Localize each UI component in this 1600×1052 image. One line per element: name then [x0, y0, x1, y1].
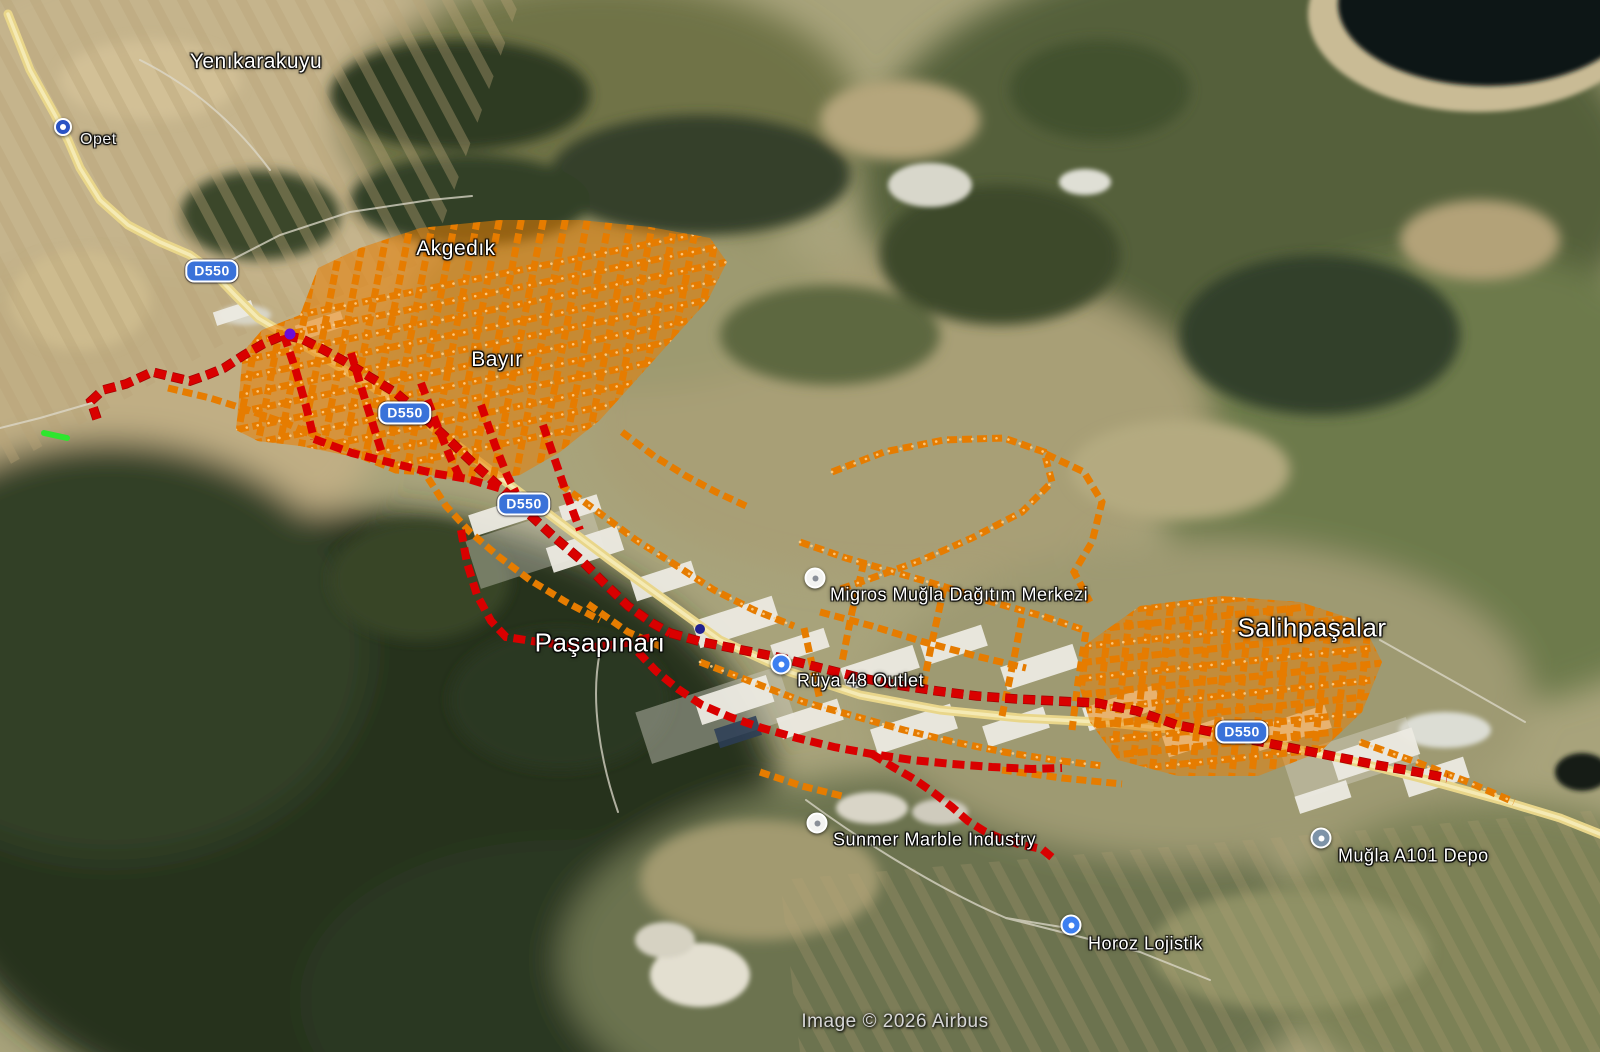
- imagery-attribution: Image © 2026 Airbus: [801, 1011, 988, 1033]
- opet-fuel-station-marker-icon[interactable]: [54, 118, 72, 136]
- mugla-a101-depo-marker-icon[interactable]: [1311, 828, 1332, 849]
- road-shield-d550-2: D550: [378, 402, 431, 425]
- road-shield-d550-4: D550: [1215, 721, 1268, 744]
- sunmer-marble-industry-marker-icon[interactable]: [807, 813, 828, 834]
- route-endpoint-dot-purple: [285, 329, 296, 340]
- poi-label-horoz-lojistik[interactable]: Horoz Lojistik: [1088, 934, 1203, 955]
- migros-distribution-center-marker-icon[interactable]: [805, 568, 826, 589]
- town-label-pasapinari[interactable]: Paşapınarı: [535, 628, 666, 659]
- poi-label-ruya-48-outlet[interactable]: Rüya 48 Outlet: [797, 671, 924, 692]
- route-overlay: [0, 0, 1600, 1052]
- ruya-48-outlet-shopping-marker-icon[interactable]: [771, 654, 792, 675]
- poi-label-sunmer-marble[interactable]: Sunmer Marble Industry: [833, 830, 1036, 851]
- route-segment-green: [44, 433, 67, 438]
- poi-label-mugla-a101-depo[interactable]: Muğla A101 Depo: [1338, 846, 1489, 867]
- horoz-lojistik-marker-icon[interactable]: [1061, 915, 1082, 936]
- satellite-map-view[interactable]: D550 D550 D550 D550 Yenıkarakuyu Akgedık…: [0, 0, 1600, 1052]
- route-endpoint-dot-navy: [695, 624, 705, 634]
- town-label-salihpasalar[interactable]: Salihpaşalar: [1237, 613, 1386, 644]
- town-label-akgedik[interactable]: Akgedık: [416, 237, 495, 261]
- road-shield-d550-1: D550: [185, 260, 238, 283]
- road-shield-d550-3: D550: [497, 493, 550, 516]
- poi-label-opet[interactable]: Opet: [80, 131, 117, 149]
- town-label-yenikarakuyu[interactable]: Yenıkarakuyu: [190, 50, 322, 74]
- poi-label-migros[interactable]: Migros Muğla Dağıtım Merkezi: [830, 585, 1088, 606]
- town-label-bayir[interactable]: Bayır: [471, 348, 523, 372]
